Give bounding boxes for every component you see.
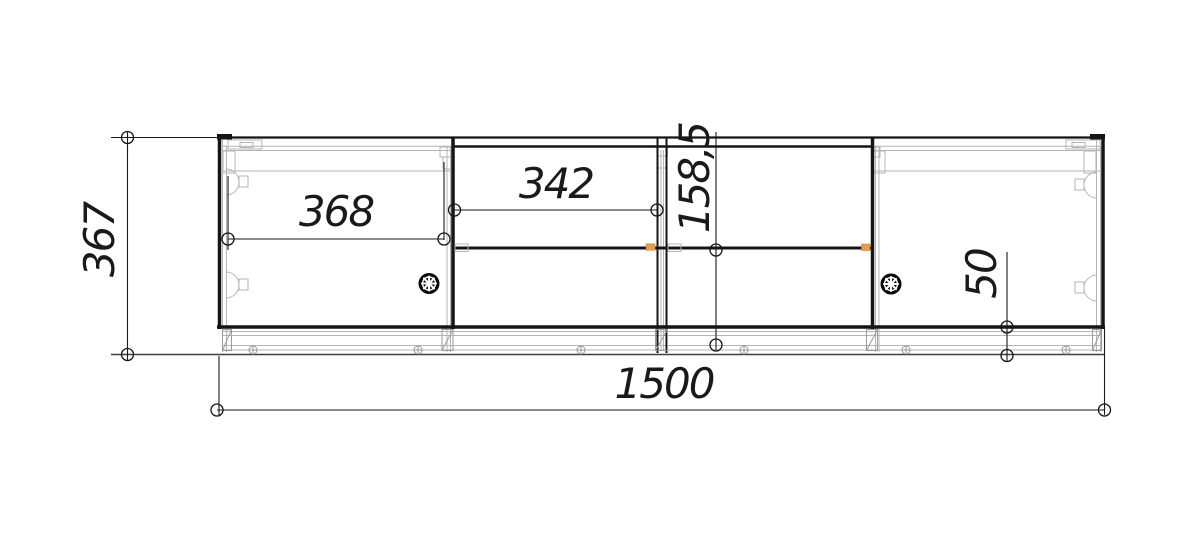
dimension-label-368: 368 [299,187,373,236]
hinge-icon [1084,275,1097,301]
furniture-assembly-drawing: 367 368 342 158,5 50 1500 [0,0,1200,554]
dimension-label-367: 367 [75,201,124,277]
right-door-knob [881,274,902,295]
connector-mark-left [646,244,655,251]
connector-mark-right [862,244,871,251]
dimension-label-342: 342 [519,159,593,208]
left-door-knob [419,273,440,294]
dimension-plinth-height: 50 [957,249,1013,361]
dimension-label-158-5: 158,5 [670,123,719,234]
knob-icon [881,274,902,295]
dimension-overall-height: 367 [75,131,218,361]
furniture-drawing-canvas: 367 368 342 158,5 50 1500 [0,0,1200,554]
dimension-left-door-width: 368 [222,187,450,245]
connector-block-icon [223,330,1102,351]
drawer-fronts [455,148,872,325]
dimension-label-1500: 1500 [615,359,714,408]
hinge-icon [1084,172,1097,198]
hinge-icon [226,272,239,298]
dimension-label-50: 50 [957,249,1006,299]
knob-icon [419,273,440,294]
